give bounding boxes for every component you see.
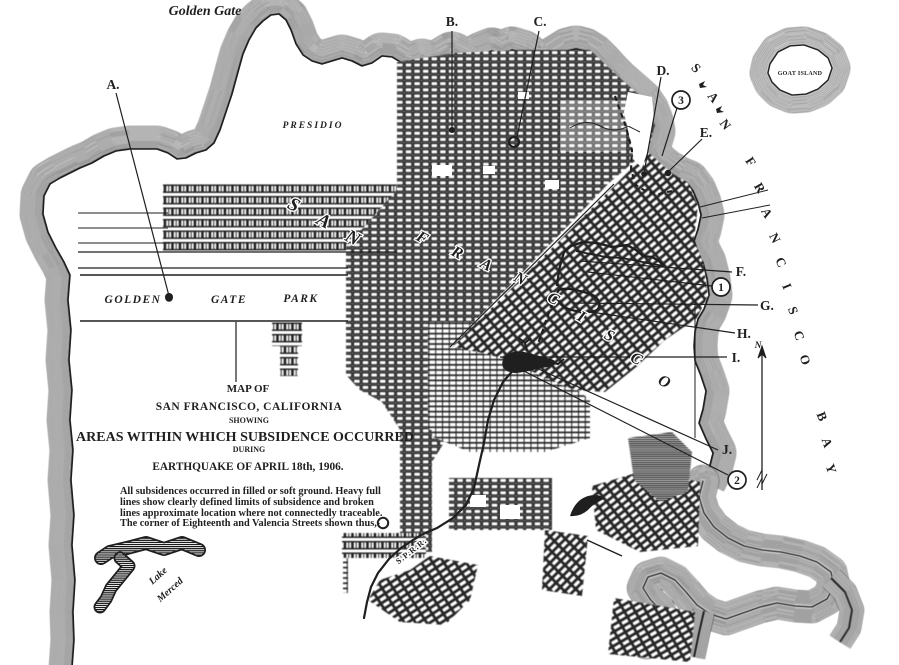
svg-text:2: 2: [734, 475, 740, 487]
svg-text:GATE: GATE: [211, 294, 247, 306]
svg-text:3: 3: [678, 95, 684, 107]
svg-text:H.: H.: [737, 326, 751, 341]
svg-text:B.: B.: [446, 14, 458, 29]
svg-text:SAN FRANCISCO, CALIFORNIA: SAN FRANCISCO, CALIFORNIA: [156, 401, 343, 413]
svg-text:PRESIDIO: PRESIDIO: [283, 121, 344, 131]
svg-text:F.: F.: [736, 264, 746, 279]
svg-text:1: 1: [718, 282, 724, 294]
svg-text:All subsidences occurred in fi: All subsidences occurred in filled or so…: [120, 486, 381, 497]
svg-text:EARTHQUAKE OF APRIL 18th, 1906: EARTHQUAKE OF APRIL 18th, 1906.: [152, 461, 343, 473]
svg-text:GOLDEN: GOLDEN: [105, 294, 162, 306]
svg-text:DURING: DURING: [233, 445, 265, 454]
svg-text:J.: J.: [722, 442, 732, 457]
svg-text:I.: I.: [732, 350, 741, 365]
svg-text:AREAS WITHIN WHICH SUBSIDENCE: AREAS WITHIN WHICH SUBSIDENCE OCCURRED: [76, 430, 414, 445]
svg-text:N: N: [754, 341, 763, 351]
svg-text:E.: E.: [700, 125, 712, 140]
svg-text:The corner of Eighteenth and V: The corner of Eighteenth and Valencia St…: [120, 518, 381, 529]
svg-text:SHOWING: SHOWING: [229, 416, 269, 425]
svg-text:lines show clearly defined lim: lines show clearly defined limits of sub…: [120, 497, 374, 508]
svg-text:Golden Gate: Golden Gate: [169, 4, 242, 19]
svg-text:D.: D.: [656, 63, 669, 78]
svg-text:GOAT ISLAND: GOAT ISLAND: [778, 71, 823, 77]
svg-text:MAP OF: MAP OF: [227, 383, 270, 395]
svg-text:C.: C.: [533, 14, 546, 29]
svg-text:A.: A.: [106, 77, 119, 92]
svg-text:G.: G.: [760, 298, 774, 313]
svg-text:PARK: PARK: [283, 293, 318, 305]
